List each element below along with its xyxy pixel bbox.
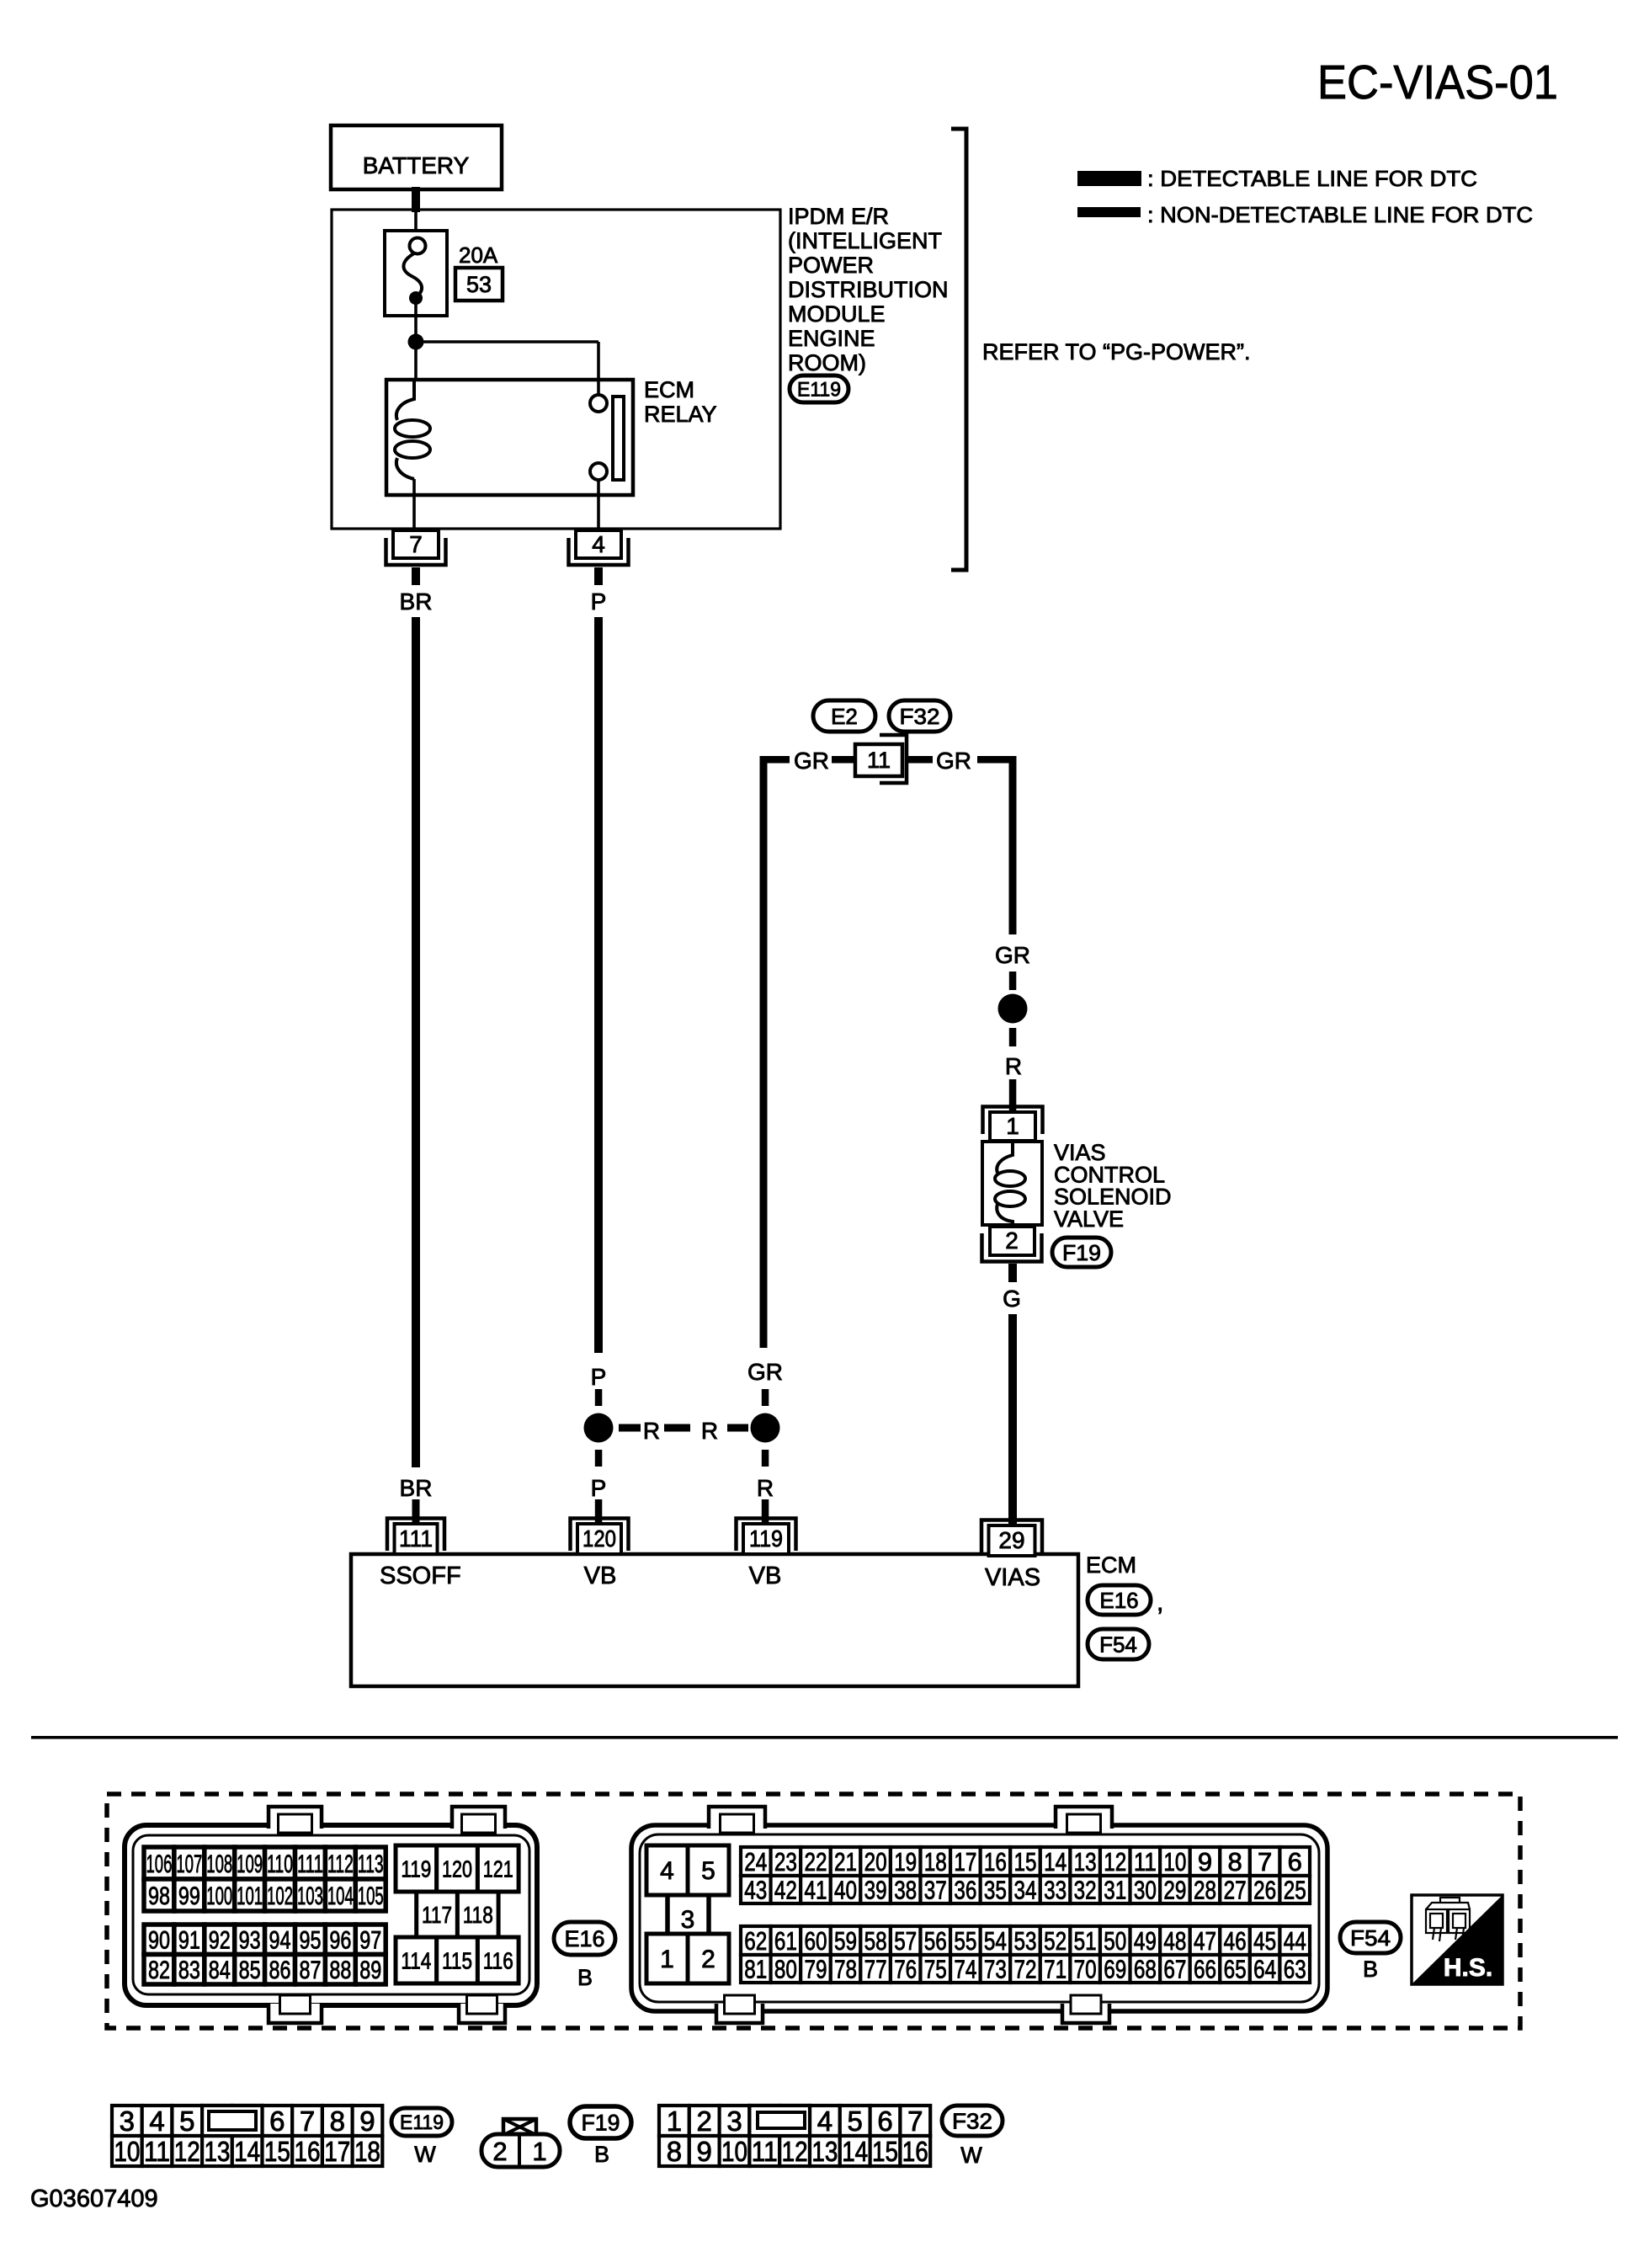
svg-text:2: 2 — [701, 1946, 715, 1973]
svg-text:78: 78 — [834, 1955, 857, 1984]
svg-text:VIAS: VIAS — [985, 1564, 1040, 1591]
svg-text:9: 9 — [359, 2106, 375, 2137]
svg-text:B: B — [577, 1965, 593, 1990]
svg-text:12: 12 — [1104, 1847, 1126, 1877]
svg-text:4: 4 — [660, 1857, 674, 1885]
svg-text:101: 101 — [237, 1882, 263, 1910]
svg-text:F54: F54 — [1350, 1925, 1391, 1951]
svg-text:5: 5 — [848, 2106, 863, 2137]
svg-text:RELAY: RELAY — [644, 402, 717, 427]
svg-text:55: 55 — [954, 1926, 976, 1956]
svg-text:VB: VB — [584, 1563, 617, 1589]
svg-text:1: 1 — [532, 2137, 546, 2166]
svg-text:114: 114 — [401, 1948, 431, 1974]
svg-text:3: 3 — [120, 2106, 135, 2137]
svg-text:100: 100 — [206, 1882, 232, 1910]
svg-text:117: 117 — [422, 1902, 452, 1928]
svg-text:119: 119 — [749, 1525, 783, 1552]
svg-text:106: 106 — [146, 1850, 172, 1878]
svg-text:ROOM): ROOM) — [788, 350, 866, 375]
svg-text:6: 6 — [1288, 1847, 1302, 1877]
svg-text:P: P — [591, 588, 607, 615]
svg-text:BATTERY: BATTERY — [363, 152, 470, 178]
svg-text:GR: GR — [995, 942, 1030, 968]
svg-text:W: W — [414, 2142, 436, 2167]
svg-text:66: 66 — [1194, 1955, 1216, 1984]
svg-text:119: 119 — [401, 1856, 431, 1882]
svg-text:43: 43 — [744, 1876, 767, 1905]
svg-text:37: 37 — [924, 1876, 947, 1905]
svg-text:48: 48 — [1163, 1926, 1186, 1956]
svg-text:91: 91 — [178, 1927, 200, 1955]
svg-text:72: 72 — [1014, 1955, 1037, 1984]
svg-text:MODULE: MODULE — [788, 301, 886, 327]
svg-text:E16: E16 — [1099, 1588, 1138, 1613]
svg-text:R: R — [1005, 1053, 1022, 1079]
svg-text:E119: E119 — [400, 2111, 444, 2134]
svg-text:30: 30 — [1134, 1876, 1157, 1905]
svg-text:11: 11 — [752, 2136, 778, 2167]
svg-text:16: 16 — [295, 2136, 321, 2167]
svg-text:103: 103 — [297, 1882, 323, 1910]
svg-text:1: 1 — [1006, 1113, 1019, 1139]
svg-text:B: B — [1363, 1957, 1378, 1982]
svg-text:42: 42 — [774, 1876, 797, 1905]
svg-text:47: 47 — [1194, 1926, 1216, 1956]
svg-text:R: R — [701, 1418, 718, 1444]
svg-text:17: 17 — [954, 1847, 976, 1877]
svg-text:IPDM E/R: IPDM E/R — [788, 204, 889, 229]
svg-text:GR: GR — [794, 748, 829, 774]
svg-text:3: 3 — [681, 1906, 695, 1934]
svg-text:: NON-DETECTABLE LINE FOR DTC: : NON-DETECTABLE LINE FOR DTC — [1147, 202, 1533, 227]
svg-text:99: 99 — [178, 1882, 200, 1910]
svg-text:79: 79 — [804, 1955, 827, 1984]
svg-text:29: 29 — [1163, 1876, 1186, 1905]
svg-text:11: 11 — [1134, 1847, 1157, 1877]
svg-text:7: 7 — [907, 2106, 923, 2137]
svg-text:54: 54 — [984, 1926, 1007, 1956]
svg-text:53: 53 — [466, 272, 492, 297]
svg-text:: DETECTABLE LINE FOR DTC: : DETECTABLE LINE FOR DTC — [1147, 166, 1477, 191]
svg-text:GR: GR — [936, 748, 971, 774]
svg-text:71: 71 — [1044, 1955, 1067, 1984]
svg-text:13: 13 — [811, 2136, 838, 2167]
svg-text:5: 5 — [701, 1857, 715, 1885]
svg-text:13: 13 — [1074, 1847, 1097, 1877]
svg-text:4: 4 — [149, 2106, 164, 2137]
svg-text:2: 2 — [1005, 1227, 1019, 1254]
svg-text:REFER TO “PG-POWER”.: REFER TO “PG-POWER”. — [982, 339, 1251, 365]
svg-text:86: 86 — [269, 1957, 291, 1984]
svg-text:111: 111 — [399, 1525, 433, 1552]
svg-text:75: 75 — [924, 1955, 947, 1984]
svg-text:2: 2 — [697, 2106, 712, 2137]
svg-text:61: 61 — [774, 1926, 797, 1956]
svg-text:20A: 20A — [459, 242, 498, 268]
svg-text:62: 62 — [744, 1926, 767, 1956]
svg-text:24: 24 — [744, 1847, 767, 1877]
svg-text:97: 97 — [359, 1927, 381, 1955]
svg-text:W: W — [960, 2143, 982, 2168]
svg-text:R: R — [643, 1418, 660, 1444]
svg-text:19: 19 — [894, 1847, 917, 1877]
svg-text:109: 109 — [237, 1850, 263, 1878]
svg-text:10: 10 — [114, 2136, 140, 2167]
svg-text:15: 15 — [1014, 1847, 1037, 1877]
svg-text:83: 83 — [178, 1957, 200, 1984]
svg-text:76: 76 — [894, 1955, 917, 1984]
svg-text:96: 96 — [329, 1927, 351, 1955]
svg-text:16: 16 — [902, 2136, 928, 2167]
svg-text:9: 9 — [1198, 1847, 1212, 1877]
svg-text:18: 18 — [354, 2136, 380, 2167]
svg-text:74: 74 — [954, 1955, 976, 1984]
svg-text:18: 18 — [924, 1847, 947, 1877]
svg-text:29: 29 — [998, 1527, 1024, 1553]
svg-text:ECM: ECM — [644, 377, 694, 402]
svg-text:(INTELLIGENT: (INTELLIGENT — [788, 228, 942, 253]
svg-text:116: 116 — [483, 1948, 513, 1974]
svg-text:58: 58 — [864, 1926, 887, 1956]
svg-text:70: 70 — [1074, 1955, 1097, 1984]
svg-text:22: 22 — [804, 1847, 827, 1877]
svg-text:POWER: POWER — [788, 253, 874, 278]
svg-text:23: 23 — [774, 1847, 797, 1877]
svg-text:81: 81 — [744, 1955, 767, 1984]
svg-text:28: 28 — [1194, 1876, 1216, 1905]
svg-text:H.S.: H.S. — [1444, 1954, 1492, 1982]
svg-text:4: 4 — [592, 531, 605, 557]
svg-text:118: 118 — [463, 1902, 493, 1928]
svg-text:92: 92 — [209, 1927, 231, 1955]
svg-text:107: 107 — [176, 1850, 202, 1878]
svg-text:68: 68 — [1134, 1955, 1157, 1984]
svg-text:34: 34 — [1014, 1876, 1037, 1905]
svg-text:7: 7 — [300, 2106, 315, 2137]
svg-text:108: 108 — [206, 1850, 232, 1878]
svg-text:113: 113 — [358, 1850, 384, 1878]
svg-text:13: 13 — [204, 2136, 230, 2167]
svg-text:52: 52 — [1044, 1926, 1067, 1956]
svg-text:4: 4 — [817, 2106, 832, 2137]
svg-text:11: 11 — [144, 2136, 170, 2167]
svg-text:115: 115 — [442, 1948, 472, 1974]
svg-text:27: 27 — [1224, 1876, 1247, 1905]
svg-text:15: 15 — [264, 2136, 290, 2167]
svg-text:6: 6 — [877, 2106, 892, 2137]
svg-text:VALVE: VALVE — [1054, 1206, 1124, 1232]
svg-text:15: 15 — [872, 2136, 898, 2167]
svg-text:25: 25 — [1284, 1876, 1306, 1905]
svg-text:GR: GR — [747, 1359, 783, 1385]
svg-text:120: 120 — [582, 1525, 616, 1552]
svg-text:P: P — [591, 1364, 607, 1390]
svg-text:57: 57 — [894, 1926, 917, 1956]
svg-text:95: 95 — [299, 1927, 321, 1955]
svg-text:80: 80 — [774, 1955, 797, 1984]
svg-text:1: 1 — [667, 2106, 682, 2137]
svg-text:63: 63 — [1284, 1955, 1306, 1984]
svg-text:56: 56 — [924, 1926, 947, 1956]
svg-text:51: 51 — [1074, 1926, 1097, 1956]
svg-text:8: 8 — [667, 2136, 682, 2167]
svg-text:64: 64 — [1253, 1955, 1276, 1984]
svg-text:F54: F54 — [1099, 1632, 1137, 1657]
svg-text:46: 46 — [1224, 1926, 1247, 1956]
svg-text:49: 49 — [1134, 1926, 1157, 1956]
svg-text:R: R — [757, 1475, 774, 1501]
svg-text:6: 6 — [269, 2106, 285, 2137]
svg-text:65: 65 — [1224, 1955, 1247, 1984]
svg-text:11: 11 — [867, 748, 891, 773]
svg-text:14: 14 — [1044, 1847, 1067, 1877]
svg-text:40: 40 — [834, 1876, 857, 1905]
svg-text:ENGINE: ENGINE — [788, 326, 875, 351]
svg-text:88: 88 — [329, 1957, 351, 1984]
svg-text:BR: BR — [400, 1475, 433, 1501]
svg-text:16: 16 — [984, 1847, 1007, 1877]
svg-text:59: 59 — [834, 1926, 857, 1956]
svg-text:17: 17 — [324, 2136, 350, 2167]
svg-text:93: 93 — [239, 1927, 261, 1955]
svg-text:60: 60 — [804, 1926, 827, 1956]
svg-text:F19: F19 — [1062, 1240, 1101, 1265]
svg-text:82: 82 — [148, 1957, 170, 1984]
svg-text:E119: E119 — [797, 379, 841, 402]
svg-text:8: 8 — [1227, 1847, 1242, 1877]
svg-text:90: 90 — [148, 1927, 170, 1955]
svg-text:121: 121 — [483, 1856, 513, 1882]
svg-text:84: 84 — [209, 1957, 231, 1984]
svg-text:33: 33 — [1044, 1876, 1067, 1905]
svg-text:VB: VB — [749, 1563, 782, 1589]
svg-text:EC-VIAS-01: EC-VIAS-01 — [1317, 56, 1558, 109]
svg-text:BR: BR — [400, 588, 433, 615]
svg-text:94: 94 — [269, 1927, 291, 1955]
svg-text:P: P — [591, 1475, 607, 1501]
svg-text:14: 14 — [234, 2136, 260, 2167]
svg-text:7: 7 — [409, 531, 423, 557]
svg-text:F32: F32 — [952, 2108, 992, 2133]
svg-text:44: 44 — [1284, 1926, 1306, 1956]
svg-text:F19: F19 — [582, 2111, 620, 2136]
svg-text:32: 32 — [1074, 1876, 1097, 1905]
svg-text:20: 20 — [864, 1847, 887, 1877]
svg-text:36: 36 — [954, 1876, 976, 1905]
svg-text:E2: E2 — [831, 704, 858, 729]
svg-text:12: 12 — [174, 2136, 200, 2167]
svg-text:39: 39 — [864, 1876, 887, 1905]
svg-text:21: 21 — [834, 1847, 857, 1877]
svg-text:50: 50 — [1104, 1926, 1126, 1956]
svg-text:B: B — [594, 2142, 609, 2167]
svg-text:SSOFF: SSOFF — [380, 1563, 461, 1589]
svg-text:112: 112 — [327, 1850, 354, 1878]
svg-text:31: 31 — [1104, 1876, 1126, 1905]
svg-text:89: 89 — [359, 1957, 381, 1984]
svg-text:69: 69 — [1104, 1955, 1126, 1984]
svg-text:41: 41 — [804, 1876, 827, 1905]
svg-text:5: 5 — [179, 2106, 194, 2137]
svg-text:DISTRIBUTION: DISTRIBUTION — [788, 277, 949, 302]
svg-text:85: 85 — [239, 1957, 261, 1984]
svg-text:G: G — [1003, 1286, 1021, 1312]
svg-text:77: 77 — [864, 1955, 887, 1984]
svg-text:F32: F32 — [900, 704, 940, 729]
svg-text:,: , — [1157, 1589, 1163, 1616]
svg-text:9: 9 — [697, 2136, 712, 2167]
svg-text:G03607409: G03607409 — [30, 2185, 158, 2212]
svg-text:111: 111 — [297, 1850, 323, 1878]
svg-text:120: 120 — [442, 1856, 472, 1882]
svg-text:110: 110 — [267, 1850, 293, 1878]
svg-text:10: 10 — [1163, 1847, 1186, 1877]
svg-text:E16: E16 — [564, 1926, 604, 1951]
svg-text:53: 53 — [1014, 1926, 1037, 1956]
svg-text:73: 73 — [984, 1955, 1007, 1984]
svg-text:38: 38 — [894, 1876, 917, 1905]
svg-text:104: 104 — [327, 1882, 354, 1910]
svg-text:26: 26 — [1253, 1876, 1276, 1905]
svg-text:45: 45 — [1253, 1926, 1276, 1956]
svg-text:102: 102 — [267, 1882, 293, 1910]
svg-text:2: 2 — [492, 2137, 507, 2166]
svg-text:87: 87 — [299, 1957, 321, 1984]
svg-text:67: 67 — [1163, 1955, 1186, 1984]
svg-text:12: 12 — [782, 2136, 808, 2167]
svg-text:10: 10 — [721, 2136, 747, 2167]
svg-text:7: 7 — [1258, 1847, 1272, 1877]
svg-text:105: 105 — [358, 1882, 384, 1910]
svg-text:1: 1 — [660, 1946, 674, 1973]
svg-text:ECM: ECM — [1086, 1552, 1136, 1578]
svg-text:98: 98 — [148, 1882, 170, 1910]
svg-text:35: 35 — [984, 1876, 1007, 1905]
svg-text:14: 14 — [842, 2136, 868, 2167]
svg-text:8: 8 — [330, 2106, 345, 2137]
svg-text:3: 3 — [726, 2106, 742, 2137]
